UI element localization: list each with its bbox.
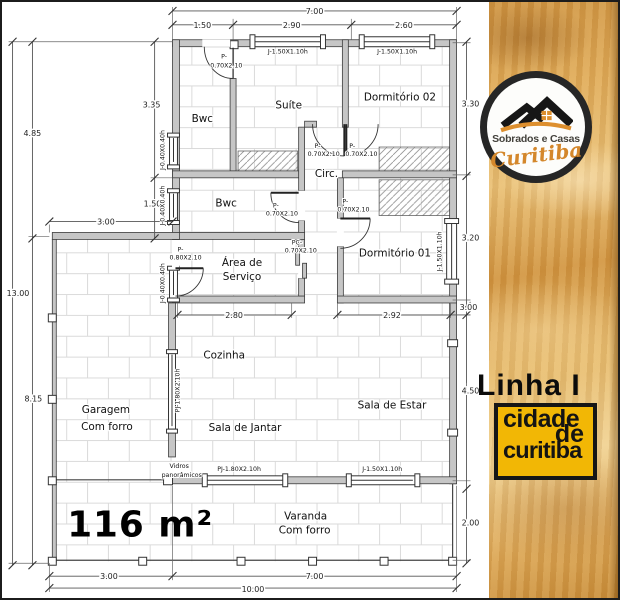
suite-closet-hatch	[238, 151, 298, 172]
company-logo-badge: Sobrados e Casas Curitiba	[480, 71, 592, 183]
wall	[299, 127, 305, 191]
dim-top-3: 2.60	[395, 21, 413, 30]
window-servico	[168, 266, 180, 302]
floor-plan-flyer: 7.00 1.50 2.90 2.60 13.00 4.85 8.15 3.35…	[0, 0, 620, 600]
house-roof-icon	[499, 87, 573, 133]
dim-bottom-2: 7.00	[306, 572, 324, 581]
door-label: P-	[221, 54, 227, 61]
window-varanda-j	[346, 474, 420, 487]
dim-left-total: 13.00	[7, 289, 30, 298]
sidebar: Sobrados e Casas Curitiba Linha I cidade…	[489, 2, 618, 598]
door-label: 0.70X2.10	[266, 211, 298, 218]
room-label-bwc1: Bwc	[192, 113, 214, 125]
door-label: 0.70X2.10	[308, 151, 340, 158]
room-label-garagem-1: Garagem	[82, 404, 130, 416]
dim-right-3: 3.00	[460, 303, 478, 312]
series-title: Linha I	[477, 369, 581, 403]
room-label-dorm02: Dormitório 02	[364, 91, 436, 103]
cidade-de-curitiba-badge: cidade de curitiba	[494, 403, 597, 480]
wall	[299, 278, 305, 296]
window-bwc2	[168, 189, 180, 225]
wall	[52, 232, 179, 239]
wood-edge-shadow	[609, 2, 618, 598]
dim-dorm01-width: 2.92	[383, 311, 401, 320]
wall	[172, 296, 304, 303]
window-varanda-pj	[202, 474, 287, 487]
wall	[172, 232, 304, 239]
door-label: PC-	[292, 239, 302, 246]
window-label: PJ-1.80X2.10h	[174, 369, 181, 413]
wall	[337, 296, 456, 303]
room-label-garagem-2: Com forro	[81, 421, 133, 433]
room-label-bwc2: Bwc	[215, 198, 237, 210]
window-label: J-1.50X1.10h	[437, 231, 444, 272]
door-label: P-	[342, 199, 348, 206]
wall	[342, 40, 348, 127]
door-label: 0.80X2.10	[170, 254, 202, 261]
window-dorm01	[445, 219, 459, 285]
dim-garage-width: 3.00	[97, 218, 115, 227]
window-label: PJ-1.80X2.10h	[217, 466, 261, 473]
dim-left-upper: 4.85	[23, 129, 41, 138]
door-label: 0.70X2.10	[345, 151, 377, 158]
room-label-servico-2: Serviço	[223, 271, 261, 283]
door-label: P-	[315, 143, 321, 150]
glass-note-2: panorâmicos	[162, 471, 202, 479]
room-label-varanda-2: Com forro	[279, 524, 331, 536]
door-label: 0.70X2.10	[337, 207, 369, 214]
dim-right-1: 3.30	[462, 99, 480, 108]
wall	[305, 121, 317, 127]
room-label-jantar: Sala de Jantar	[209, 422, 282, 434]
dorm01-closet-hatch	[379, 180, 453, 216]
door-label: 0.70X2.10	[210, 63, 242, 70]
window-bwc1	[168, 133, 180, 169]
area-label: 116 m²	[67, 504, 213, 545]
dorm02-closet-hatch	[379, 147, 453, 172]
door-label: 0.70X2.10	[285, 247, 317, 254]
dim-servico-width: 2.80	[225, 311, 243, 320]
room-label-dorm01: Dormitório 01	[359, 247, 431, 259]
wall	[342, 171, 456, 178]
room-label-circ: Circ.	[315, 168, 338, 180]
dim-right-5: 2.00	[462, 518, 480, 527]
badge-line-3: curitiba	[503, 439, 588, 463]
dim-top-total: 7.00	[306, 7, 324, 16]
wall	[337, 246, 343, 303]
wall	[230, 78, 236, 175]
dim-right-2: 3.20	[462, 233, 480, 242]
dim-top-1: 1.50	[193, 21, 211, 30]
room-label-suite: Suíte	[275, 99, 302, 111]
dim-left-lower: 8.15	[24, 394, 42, 403]
dim-left-bwc: 3.35	[143, 100, 161, 109]
window-label: J-1.50X1.10h	[361, 466, 402, 473]
window-label: J-0.40X0.40h	[160, 263, 167, 304]
room-label-cozinha: Cozinha	[203, 350, 245, 362]
dim-bottom-total: 10.00	[242, 585, 265, 594]
wall	[172, 171, 304, 178]
door-label: P-	[349, 143, 355, 150]
floor-plan-drawing: 7.00 1.50 2.90 2.60 13.00 4.85 8.15 3.35…	[2, 2, 491, 598]
door-label: P-	[273, 203, 279, 210]
room-label-servico-1: Área de	[222, 256, 262, 269]
dim-bottom-1: 3.00	[100, 572, 118, 581]
dim-top-2: 2.90	[283, 21, 301, 30]
room-label-varanda-1: Varanda	[284, 511, 327, 523]
door-label: P-	[177, 246, 183, 253]
glass-note-1: Vidros	[170, 463, 189, 470]
window-label: J-0.40X0.40h	[160, 186, 167, 227]
window-label: J-1.50X1.10h	[267, 49, 308, 56]
window-top-suite	[250, 35, 325, 49]
window-label: J-1.50X1.10h	[376, 49, 417, 56]
room-label-estar: Sala de Estar	[358, 399, 427, 411]
window-label: J-0.40X0.40h	[160, 130, 167, 171]
window-top-dorm02	[359, 35, 434, 49]
